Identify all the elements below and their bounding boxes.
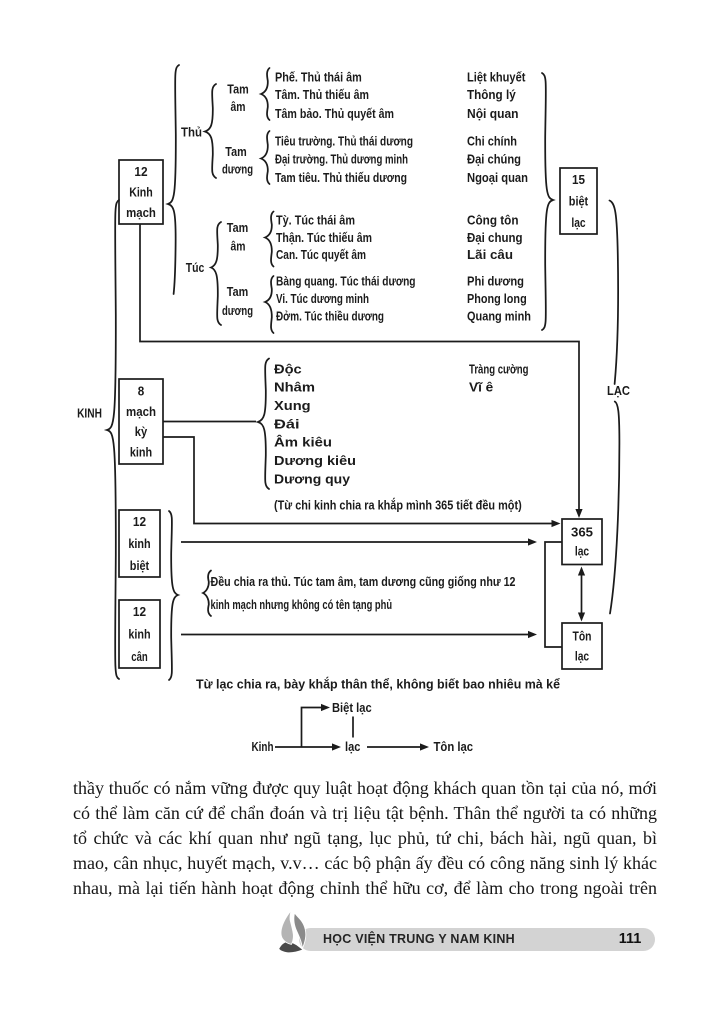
svg-text:12: 12 [133, 514, 146, 529]
svg-text:biệt: biệt [569, 194, 589, 209]
svg-text:Thủ: Thủ [181, 125, 202, 140]
svg-text:12: 12 [134, 164, 147, 179]
svg-text:Phế. Thủ thái âm: Phế. Thủ thái âm [275, 70, 362, 85]
svg-text:Chi chính: Chi chính [467, 134, 517, 149]
svg-text:15: 15 [572, 172, 585, 187]
svg-text:Tam tiêu. Thủ thiếu dương: Tam tiêu. Thủ thiếu dương [275, 170, 407, 185]
svg-text:Kinh: Kinh [129, 185, 153, 200]
svg-text:Can. Túc quyết âm: Can. Túc quyết âm [276, 247, 366, 262]
svg-text:Liệt khuyết: Liệt khuyết [467, 70, 526, 85]
svg-text:Thận. Túc thiếu âm: Thận. Túc thiếu âm [276, 230, 372, 245]
svg-text:dương: dương [222, 162, 253, 177]
svg-text:Lãi câu: Lãi câu [467, 247, 513, 262]
svg-text:dương: dương [222, 303, 253, 318]
svg-text:Dương kiêu: Dương kiêu [274, 453, 356, 468]
svg-text:Công tôn: Công tôn [467, 213, 519, 228]
svg-text:8: 8 [138, 384, 145, 399]
svg-text:lạc: lạc [575, 544, 589, 559]
svg-text:Âm kiêu: Âm kiêu [274, 435, 332, 450]
svg-text:365: 365 [571, 525, 593, 540]
svg-text:LẠC: LẠC [607, 383, 631, 398]
svg-text:Biệt lạc: Biệt lạc [332, 700, 372, 715]
svg-text:Thông lý: Thông lý [467, 87, 516, 102]
svg-text:cân: cân [131, 649, 148, 664]
svg-text:lạc: lạc [575, 648, 589, 663]
svg-text:kinh mạch nhưng không có tên t: kinh mạch nhưng không có tên tạng phủ [211, 597, 393, 612]
svg-text:âm: âm [231, 239, 246, 254]
svg-text:kinh: kinh [128, 627, 150, 642]
svg-text:biệt: biệt [130, 558, 150, 573]
svg-text:Tam: Tam [227, 82, 248, 97]
svg-text:Tôn lạc: Tôn lạc [434, 739, 474, 754]
svg-text:Phong long: Phong long [467, 291, 527, 306]
svg-text:Tràng cường: Tràng cường [469, 362, 529, 377]
svg-text:Đại trường. Thủ dương minh: Đại trường. Thủ dương minh [275, 152, 408, 167]
svg-text:Đều chia ra thủ. Túc tam âm, t: Đều chia ra thủ. Túc tam âm, tam dương c… [211, 574, 516, 589]
svg-text:kinh: kinh [130, 445, 152, 460]
svg-text:Tỳ. Túc thái âm: Tỳ. Túc thái âm [276, 213, 355, 228]
svg-text:Kinh: Kinh [252, 739, 274, 754]
svg-text:Dương quy: Dương quy [274, 472, 351, 487]
svg-text:Tam: Tam [225, 144, 246, 159]
svg-text:KINH: KINH [77, 406, 102, 421]
svg-text:Tâm bảo. Thủ quyết âm: Tâm bảo. Thủ quyết âm [275, 106, 394, 121]
svg-text:Vĩ ê: Vĩ ê [469, 380, 493, 395]
svg-text:mạch: mạch [126, 205, 156, 220]
svg-text:Túc: Túc [186, 260, 205, 275]
svg-text:Nội quan: Nội quan [467, 106, 519, 121]
svg-text:Xung: Xung [274, 398, 311, 413]
svg-text:Bàng quang. Túc thái dương: Bàng quang. Túc thái dương [276, 274, 416, 289]
svg-text:12: 12 [133, 604, 146, 619]
svg-text:Nhâm: Nhâm [274, 380, 315, 395]
svg-text:âm: âm [231, 99, 246, 114]
svg-text:Đái: Đái [274, 417, 300, 432]
svg-text:lạc: lạc [345, 739, 360, 754]
svg-text:Từ lạc chia ra, bày khắp thân: Từ lạc chia ra, bày khắp thân thể, không… [196, 677, 560, 692]
svg-text:Đại chúng: Đại chúng [467, 152, 521, 167]
svg-text:Đại chung: Đại chung [467, 230, 523, 245]
svg-text:Tâm. Thủ thiếu âm: Tâm. Thủ thiếu âm [275, 87, 369, 102]
svg-text:Tôn: Tôn [573, 629, 592, 644]
svg-text:mạch: mạch [126, 404, 156, 419]
svg-text:Đởm. Túc thiều dương: Đởm. Túc thiều dương [276, 309, 384, 324]
svg-text:Tiêu trường. Thủ thái dương: Tiêu trường. Thủ thái dương [275, 134, 413, 149]
svg-text:Quang minh: Quang minh [467, 309, 531, 324]
svg-text:Tam: Tam [227, 220, 248, 235]
svg-text:Ngoại quan: Ngoại quan [467, 170, 528, 185]
svg-text:Phi dương: Phi dương [467, 274, 524, 289]
svg-text:Vi. Túc dương minh: Vi. Túc dương minh [276, 291, 369, 306]
svg-text:Tam: Tam [227, 284, 248, 299]
svg-text:kỳ: kỳ [135, 424, 148, 439]
svg-text:kinh: kinh [128, 536, 150, 551]
svg-text:(Từ chi kinh chia ra khắp mình: (Từ chi kinh chia ra khắp mình 365 tiết … [274, 498, 522, 513]
svg-text:lạc: lạc [571, 215, 585, 230]
svg-text:Độc: Độc [274, 362, 302, 377]
